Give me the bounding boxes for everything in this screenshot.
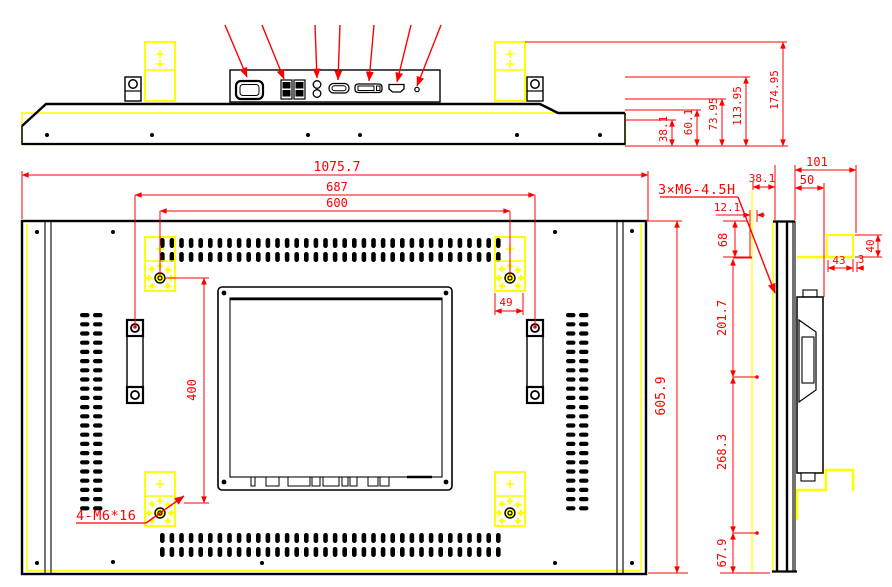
power-inlet-inner xyxy=(240,85,259,96)
top-right-mount-bracket xyxy=(495,42,525,101)
side-view: 101 50 38.1 12.1 68 201.7 268.3 67.9 40 … xyxy=(658,155,882,573)
dim-vesa-width: 600 xyxy=(326,196,348,210)
dim-depth-5: 174.95 xyxy=(768,70,781,110)
dim-bracket-offset: 49 xyxy=(499,296,512,309)
dim-handle-span: 687 xyxy=(326,180,348,194)
dim-side-height-201: 201.7 xyxy=(715,300,729,336)
audio-jacks-icon xyxy=(313,81,321,98)
hdmi-port-icon xyxy=(389,85,404,93)
dim-depth-4: 113.95 xyxy=(731,86,744,126)
dim-depth-1: 38.1 xyxy=(657,116,670,143)
dim-side-height-268: 268.3 xyxy=(715,434,729,470)
io-callout-arrows xyxy=(225,25,441,86)
dim-bracket-43: 43 xyxy=(832,254,845,267)
drawing-canvas: 38.1 60.1 73.95 113.95 174.95 xyxy=(0,0,892,587)
dim-side-height-67: 67.9 xyxy=(715,539,729,568)
dim-side-height-68: 68 xyxy=(716,233,730,247)
top-left-mount-bracket xyxy=(145,42,175,101)
dc-jack-icon xyxy=(415,87,419,91)
mount-screw-note: 4-M6*16 xyxy=(76,508,136,524)
right-handle-bracket xyxy=(527,320,543,403)
pc-module-box xyxy=(218,287,452,490)
top-right-hinge-bracket xyxy=(527,77,543,101)
engineering-drawing-monitor: 38.1 60.1 73.95 113.95 174.95 xyxy=(0,0,892,587)
vga-port-icon xyxy=(329,84,349,94)
dim-side-depth-12: 12.1 xyxy=(714,201,741,214)
top-view: 38.1 60.1 73.95 113.95 174.95 xyxy=(22,25,788,146)
dim-depth-2: 60.1 xyxy=(682,109,695,136)
usb-ports-icon xyxy=(281,80,305,99)
dim-bracket-40: 40 xyxy=(864,239,877,252)
dim-vesa-height: 400 xyxy=(185,379,199,401)
dim-side-depth-101: 101 xyxy=(806,155,828,169)
side-panel-profile xyxy=(772,221,797,572)
side-pc-module xyxy=(797,290,823,481)
dvi-port-icon xyxy=(355,84,382,93)
rear-view: 1075.7 687 600 605.9 400 49 4-M6*16 xyxy=(22,160,688,574)
io-panel xyxy=(230,70,440,102)
left-handle-bracket xyxy=(127,320,143,403)
dim-overall-height: 605.9 xyxy=(654,376,669,415)
side-hole-note: 3×M6-4.5H xyxy=(658,182,736,198)
top-view-front-band xyxy=(22,113,625,145)
dim-side-depth-50: 50 xyxy=(800,173,814,187)
top-left-hinge-bracket xyxy=(125,77,141,101)
dim-side-depth-38: 38.1 xyxy=(749,172,776,185)
dim-overall-width: 1075.7 xyxy=(314,160,361,175)
dim-bracket-3: 3 xyxy=(858,253,865,266)
dim-depth-3: 73.95 xyxy=(707,97,720,130)
pc-module-port-cutouts xyxy=(251,477,389,486)
